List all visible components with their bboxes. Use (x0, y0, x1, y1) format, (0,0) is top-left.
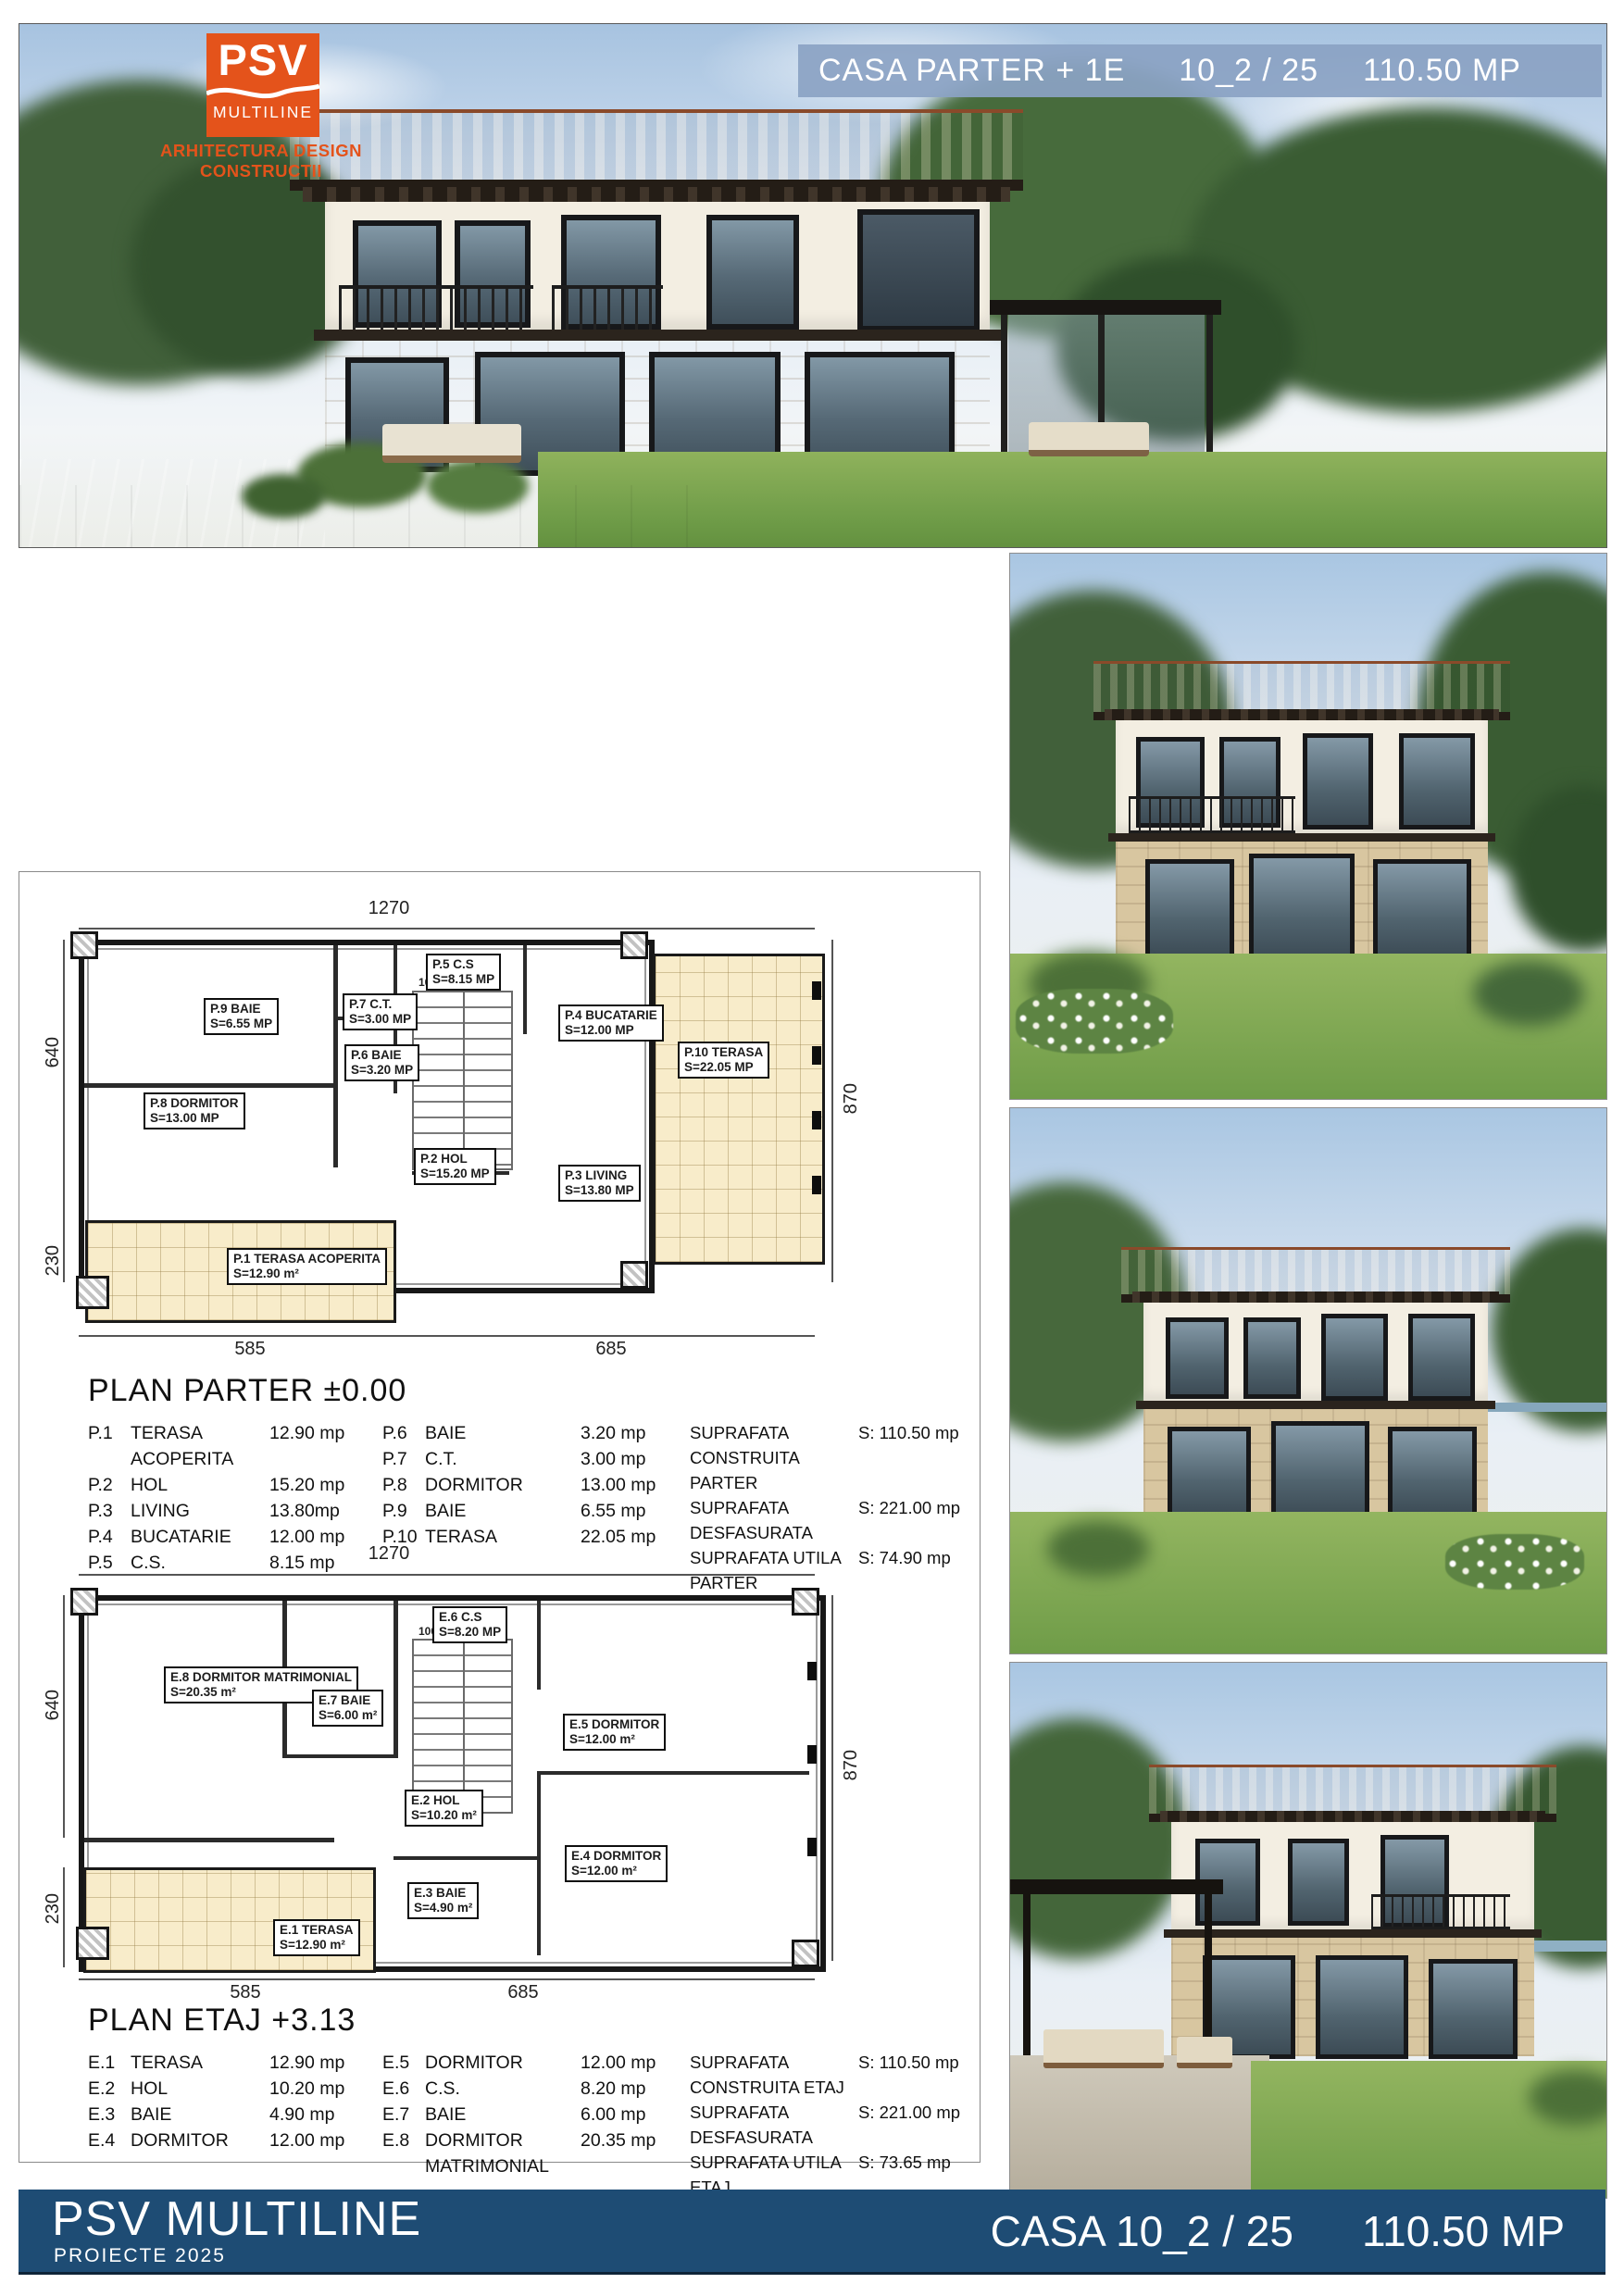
legend-value: 12.90 mp (269, 2050, 366, 2076)
ground-glass-door (1316, 1955, 1408, 2059)
corner-column (792, 1940, 819, 1967)
legend-row: E.6C.S.8.20 mp (382, 2076, 677, 2102)
legend-id: P.2 (88, 1472, 131, 1498)
interior-wall (84, 1838, 334, 1842)
footer-bar: PSV MULTILINE PROIECTE 2025 CASA 10_2 / … (19, 2190, 1605, 2275)
dim-line (63, 940, 65, 1282)
floor-slab (1136, 1401, 1495, 1409)
corner-column (620, 931, 648, 959)
plan-etaj-drawing: 1270 100 100 E.8 DORMITOR MATRIMONIAL S=… (56, 1532, 926, 2009)
room-name: P.7 C.T. (349, 997, 411, 1012)
legend-id: E.4 (88, 2128, 131, 2153)
surface-row: SUPRAFATA CONSTRUITA PARTERS: 110.50 mp (690, 1420, 968, 1495)
legend-col-surfaces: SUPRAFATA CONSTRUITA ETAJS: 110.50 mp SU… (690, 2050, 968, 2200)
upper-window (1288, 1839, 1349, 1926)
floor-slab (1164, 1929, 1542, 1938)
pergola-post (1023, 1894, 1031, 2061)
legend-row: P.2HOL15.20 mp (88, 1472, 366, 1498)
corner-column (76, 1927, 109, 1960)
room-name: P.5 C.S (432, 957, 494, 972)
legend-id: E.8 (382, 2128, 425, 2179)
upper-window (1303, 733, 1373, 830)
surface-value: S: 110.50 mp (858, 1420, 968, 1495)
interior-wall (282, 1754, 398, 1758)
legend-row: P.7C.T.3.00 mp (382, 1446, 677, 1472)
room-label-e5: E.5 DORMITOR S=12.00 m² (563, 1714, 666, 1751)
room-name: P.10 TERASA (684, 1045, 763, 1060)
canopy-post (1001, 315, 1007, 470)
legend-value: 12.00 mp (581, 2050, 677, 2076)
legend-row: P.6BAIE3.20 mp (382, 1420, 677, 1446)
legend-id: P.7 (382, 1446, 425, 1472)
room-name: P.1 TERASA ACOPERITA (233, 1252, 381, 1267)
dim-left-upper: 640 (43, 1690, 64, 1720)
upper-window (1166, 1317, 1229, 1399)
legend-row: P.9BAIE6.55 mp (382, 1498, 677, 1524)
legend-col-left: E.1TERASA12.90 mp E.2HOL10.20 mp E.3BAIE… (88, 2050, 366, 2200)
room-label-p9: P.9 BAIE S=6.55 MP (204, 998, 279, 1035)
hero-title-bar: CASA PARTER + 1E 10_2 / 25 110.50 MP (798, 44, 1602, 97)
room-name: E.2 HOL (411, 1793, 477, 1808)
room-label-e3: E.3 BAIE S=4.90 m² (407, 1882, 479, 1919)
room-name: P.8 DORMITOR (150, 1096, 239, 1111)
legend-value: 12.90 mp (269, 1420, 366, 1472)
interior-wall (537, 1601, 541, 1690)
surface-value: S: 110.50 mp (858, 2050, 968, 2100)
room-area: S=3.20 MP (351, 1063, 413, 1078)
legend-id: P.9 (382, 1498, 425, 1524)
upper-window (1408, 1314, 1475, 1401)
legend-row: E.3BAIE4.90 mp (88, 2102, 366, 2128)
legend-value: 15.20 mp (269, 1472, 366, 1498)
legend-name: C.T. (425, 1446, 581, 1472)
legend-name: HOL (131, 2076, 269, 2102)
window-mark (807, 1662, 817, 1680)
room-name: P.4 BUCATARIE (565, 1008, 657, 1023)
room-area: S=13.80 MP (565, 1183, 634, 1198)
plan-etaj-title: PLAN ETAJ +3.13 (88, 2003, 968, 2039)
render-photo-3 (1009, 1662, 1607, 2199)
upper-window (706, 215, 799, 330)
legend-row: E.8DORMITOR MATRIMONIAL20.35 mp (382, 2128, 677, 2179)
room-area: S=4.90 m² (414, 1901, 472, 1915)
footer-area: 110.50 MP (1362, 2206, 1565, 2256)
interior-wall (537, 1771, 541, 1955)
room-name: E.3 BAIE (414, 1886, 472, 1901)
legend-name: DORMITOR MATRIMONIAL (425, 2128, 581, 2179)
window-mark (812, 1111, 821, 1129)
legend-name: DORMITOR (425, 1472, 581, 1498)
ground-window (1168, 1427, 1251, 1519)
room-name: P.6 BAIE (351, 1048, 413, 1063)
room-area: S=3.00 MP (349, 1012, 411, 1027)
terrace-deck (1010, 2055, 1269, 2198)
interior-wall (394, 1856, 537, 1860)
window-mark (807, 1745, 817, 1764)
room-label-p7: P.7 C.T. S=3.00 MP (343, 993, 418, 1030)
room-label-e1: E.1 TERASA S=12.90 m² (273, 1919, 360, 1956)
legend-name: DORMITOR (131, 2128, 269, 2153)
room-name: E.5 DORMITOR (569, 1717, 659, 1732)
room-name: P.9 BAIE (210, 1002, 272, 1017)
window-mark (812, 1176, 821, 1194)
brochure-page: PSV MULTILINE ARHITECTURA DESIGN CONSTRU… (0, 0, 1624, 2296)
floor-slab (1108, 833, 1495, 842)
footer-brand: PSV MULTILINE (52, 2191, 421, 2247)
legend-row: E.4DORMITOR12.00 mp (88, 2128, 366, 2153)
interior-wall (84, 1083, 338, 1088)
project-area: 110.50 MP (1363, 53, 1521, 89)
corner-column (620, 1261, 648, 1289)
legend-name: TERASA (131, 2050, 269, 2076)
legend-value: 6.00 mp (581, 2102, 677, 2128)
interior-wall (394, 1601, 398, 1758)
dim-bottom-left: 585 (194, 1339, 306, 1360)
room-area: S=12.90 m² (233, 1267, 381, 1281)
dim-right: 870 (841, 1750, 862, 1780)
room-area: S=6.00 m² (319, 1708, 377, 1723)
legend-value: 12.00 mp (269, 2128, 366, 2153)
room-name: E.7 BAIE (319, 1693, 377, 1708)
legend-name: BAIE (425, 1420, 581, 1446)
psv-logo: PSV MULTILINE (206, 33, 319, 137)
legend-value: 10.20 mp (269, 2076, 366, 2102)
legend-row: E.5DORMITOR12.00 mp (382, 2050, 677, 2076)
legend-value: 3.00 mp (581, 1446, 677, 1472)
terrace-sofa (1029, 422, 1149, 456)
legend-etaj: PLAN ETAJ +3.13 E.1TERASA12.90 mp E.2HOL… (88, 2003, 968, 2200)
room-area: S=12.00 m² (571, 1864, 661, 1878)
legend-id: P.3 (88, 1498, 131, 1524)
room-name: E.4 DORMITOR (571, 1849, 661, 1864)
dim-line (79, 928, 815, 930)
roof-eave (1105, 709, 1499, 720)
tree (1009, 1718, 1186, 1959)
window-mark (812, 981, 821, 1000)
ground-glass-door (1271, 1421, 1369, 1521)
logo-tagline: ARHITECTURA DESIGN CONSTRUCTII (137, 141, 385, 181)
legend-name: LIVING (131, 1498, 269, 1524)
room-label-p2: P.2 HOL S=15.20 MP (414, 1148, 496, 1185)
room-label-p1: P.1 TERASA ACOPERITA S=12.90 m² (227, 1248, 387, 1285)
legend-row: E.7BAIE6.00 mp (382, 2102, 677, 2128)
dim-bottom-left: 585 (190, 1982, 301, 2003)
interior-wall (537, 1771, 809, 1775)
bush (427, 459, 529, 513)
side-canopy (990, 300, 1221, 315)
footer-right: CASA 10_2 / 25 110.50 MP (991, 2206, 1565, 2256)
bush (1473, 961, 1584, 1026)
logo-multiline-text: MULTILINE (213, 103, 313, 122)
room-area: S=10.20 m² (411, 1808, 477, 1823)
room-area: S=8.15 MP (432, 972, 494, 987)
upper-corner-glazing (857, 209, 980, 331)
dim-right: 870 (841, 1083, 862, 1114)
legend-row: E.1TERASA12.90 mp (88, 2050, 366, 2076)
legend-col-right: E.5DORMITOR12.00 mp E.6C.S.8.20 mp E.7BA… (382, 2050, 677, 2200)
canopy-post (1206, 315, 1213, 470)
room-label-p4: P.4 BUCATARIE S=12.00 MP (558, 1004, 664, 1042)
room-area: S=6.55 MP (210, 1017, 272, 1031)
legend-id: E.2 (88, 2076, 131, 2102)
balcony-railing (1371, 1894, 1510, 1929)
legend-name: C.S. (425, 2076, 581, 2102)
window-mark (807, 1838, 817, 1856)
legend-row: P.1TERASA ACOPERITA12.90 mp (88, 1420, 366, 1472)
surface-label: SUPRAFATA DESFASURATA (690, 2100, 858, 2150)
room-label-e2: E.2 HOL S=10.20 m² (405, 1790, 483, 1827)
dim-left-upper: 640 (43, 1037, 64, 1067)
pergola-roof (1010, 1879, 1223, 1894)
surface-value: S: 221.00 mp (858, 2100, 968, 2150)
room-label-p8: P.8 DORMITOR S=13.00 MP (144, 1092, 245, 1129)
room-name: P.3 LIVING (565, 1168, 634, 1183)
interior-wall (523, 945, 527, 1034)
staircase (412, 991, 513, 1170)
room-name: E.1 TERASA (280, 1923, 354, 1938)
ground-window (1373, 859, 1471, 961)
logo-psv-text: PSV (218, 37, 307, 82)
outdoor-chair (1177, 2037, 1232, 2068)
render-photo-2 (1009, 1107, 1607, 1654)
project-code: 10_2 / 25 (1179, 53, 1318, 89)
legend-row: P.8DORMITOR13.00 mp (382, 1472, 677, 1498)
legend-name: BAIE (131, 2102, 269, 2128)
room-area: S=15.20 MP (420, 1167, 490, 1181)
room-area: S=12.90 m² (280, 1938, 354, 1953)
plan-parter-drawing: 1270 100 100 P.9 BAIE S=6.55 MP P.7 C.T.… (56, 861, 926, 1361)
room-area: S=22.05 MP (684, 1060, 763, 1075)
room-label-p10: P.10 TERASA S=22.05 MP (678, 1042, 769, 1079)
legend-value: 8.20 mp (581, 2076, 677, 2102)
legend-name: DORMITOR (425, 2050, 581, 2076)
legend-name: BAIE (425, 2102, 581, 2128)
window-mark (812, 1046, 821, 1065)
legend-id: E.3 (88, 2102, 131, 2128)
dim-line (831, 940, 833, 1282)
room-area: S=13.00 MP (150, 1111, 239, 1126)
legend-id: E.5 (382, 2050, 425, 2076)
legend-row: P.3LIVING13.80mp (88, 1498, 366, 1524)
surface-row: SUPRAFATA DESFASURATAS: 221.00 mp (690, 2100, 968, 2150)
bush (242, 474, 325, 518)
outdoor-sofa (1043, 2029, 1164, 2068)
legend-id: E.6 (382, 2076, 425, 2102)
legend-id: P.6 (382, 1420, 425, 1446)
room-label-e6: E.6 C.S S=8.20 MP (432, 1606, 507, 1643)
legend-name: HOL (131, 1472, 269, 1498)
ground-glass-door (1249, 854, 1355, 963)
footer-casa: CASA 10_2 / 25 (991, 2206, 1293, 2256)
footer-subtitle: PROIECTE 2025 (54, 2245, 226, 2267)
room-area: S=12.00 MP (565, 1023, 657, 1038)
dim-line (79, 1978, 815, 1980)
flower-bed (1445, 1534, 1584, 1590)
dim-line (79, 1335, 815, 1337)
ground-window (1388, 1427, 1477, 1519)
plan-parter-title: PLAN PARTER ±0.00 (88, 1373, 968, 1409)
ground-window (1429, 1959, 1518, 2059)
interior-wall (333, 945, 338, 1167)
legend-value: 13.00 mp (581, 1472, 677, 1498)
room-area: S=12.00 m² (569, 1732, 659, 1747)
dim-width-total: 1270 (352, 898, 426, 919)
dim-bottom-right: 685 (556, 1339, 667, 1360)
legend-value: 6.55 mp (581, 1498, 677, 1524)
ground-window (1145, 859, 1234, 961)
project-title: CASA PARTER + 1E (818, 53, 1125, 89)
flower-bed (1016, 989, 1173, 1054)
corner-column (70, 1588, 98, 1616)
logo-wave-icon (206, 81, 319, 105)
balcony-railing (552, 285, 663, 333)
roof-eave (1132, 1291, 1499, 1303)
dim-line (79, 1574, 815, 1576)
room-area: S=8.20 MP (439, 1625, 501, 1640)
surface-label: SUPRAFATA CONSTRUITA PARTER (690, 1420, 858, 1495)
legend-value: 4.90 mp (269, 2102, 366, 2128)
room-label-e4: E.4 DORMITOR S=12.00 m² (565, 1845, 668, 1882)
terrace-p10 (653, 954, 825, 1265)
dim-left-lower: 230 (43, 1245, 64, 1276)
roof-eave-rafters (303, 187, 1010, 202)
room-label-e7: E.7 BAIE S=6.00 m² (312, 1690, 383, 1727)
upper-window (1243, 1317, 1301, 1399)
dim-line (831, 1595, 833, 1961)
dim-bottom-right: 685 (468, 1982, 579, 2003)
legend-id: P.8 (382, 1472, 425, 1498)
legend-id: P.1 (88, 1420, 131, 1472)
corner-column (792, 1588, 819, 1616)
room-name: P.2 HOL (420, 1152, 490, 1167)
house-roof (290, 109, 1023, 191)
room-label-p6: P.6 BAIE S=3.20 MP (344, 1044, 419, 1081)
surface-row: SUPRAFATA CONSTRUITA ETAJS: 110.50 mp (690, 2050, 968, 2100)
terrace-sofa (382, 424, 521, 463)
corner-column (76, 1276, 109, 1309)
staircase (412, 1639, 513, 1814)
upper-window (1399, 733, 1475, 830)
roof-eave (1160, 1811, 1545, 1822)
room-name: E.6 C.S (439, 1610, 501, 1625)
corner-column (70, 931, 98, 959)
room-label-p5: P.5 C.S S=8.15 MP (426, 954, 501, 991)
legend-value: 20.35 mp (581, 2128, 677, 2179)
pergola-post (1205, 1894, 1212, 2061)
dim-left-lower: 230 (43, 1893, 64, 1924)
surface-label: SUPRAFATA CONSTRUITA ETAJ (690, 2050, 858, 2100)
room-label-p3: P.3 LIVING S=13.80 MP (558, 1165, 641, 1202)
legend-value: 3.20 mp (581, 1420, 677, 1446)
legend-name: BAIE (425, 1498, 581, 1524)
floor-slab (314, 330, 1001, 341)
render-photo-1 (1009, 553, 1607, 1100)
dim-width-total: 1270 (352, 1543, 426, 1565)
legend-name: TERASA ACOPERITA (131, 1420, 269, 1472)
balcony-railing (339, 285, 533, 333)
legend-id: E.7 (382, 2102, 425, 2128)
legend-row: E.2HOL10.20 mp (88, 2076, 366, 2102)
balcony-railing (1129, 796, 1295, 833)
upper-window (1321, 1314, 1388, 1401)
bush (1047, 1521, 1149, 1577)
legend-value: 13.80mp (269, 1498, 366, 1524)
legend-id: E.1 (88, 2050, 131, 2076)
room-name: E.8 DORMITOR MATRIMONIAL (170, 1670, 352, 1685)
